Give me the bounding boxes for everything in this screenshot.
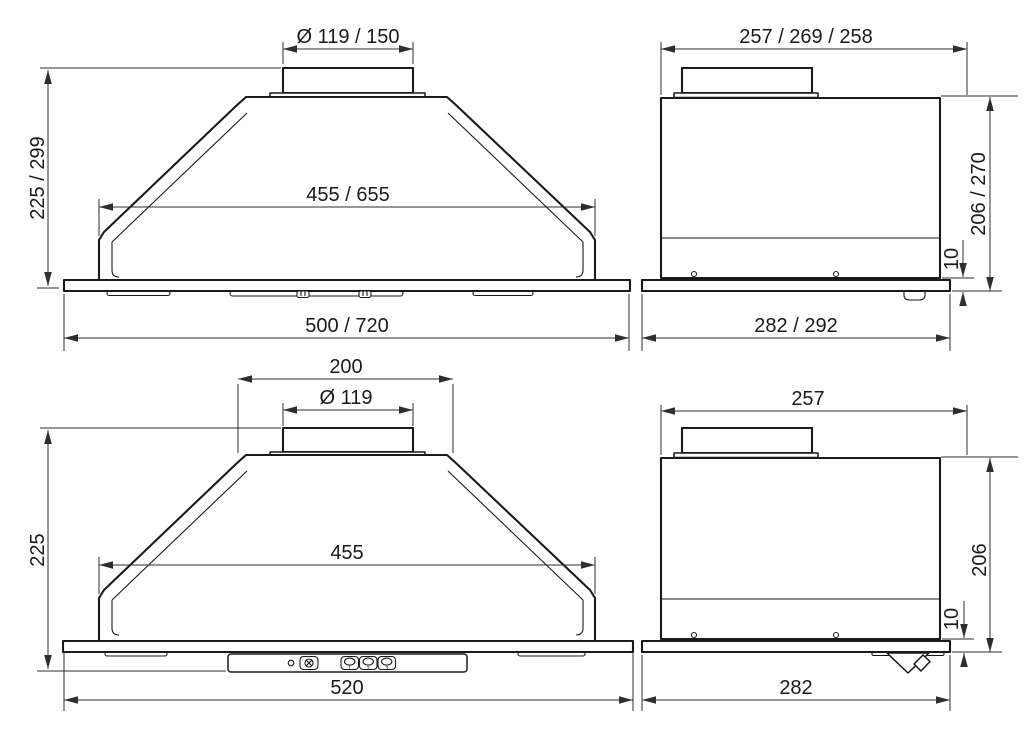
dimension-label-height: 206 / 270 [968, 152, 990, 235]
technical-drawing-canvas: Ø 119 / 150 225 / 299 455 / 655 500 / 72… [0, 0, 1024, 744]
dimension-label-duct-diameter: Ø 119 [320, 387, 373, 409]
dimension-drawing-page: Ø 119 / 150 225 / 299 455 / 655 500 / 72… [0, 0, 1024, 744]
dimension-label-overall-depth: 282 [779, 677, 812, 699]
dimension-label-top-depth: 257 [791, 388, 824, 410]
dimension-label-duct-diameter: Ø 119 / 150 [296, 26, 399, 48]
duct-collar-outline [283, 68, 413, 93]
control-panel: 1 2 3 [228, 654, 467, 672]
bottom-plate-outline [642, 641, 950, 652]
duct-flange-outline [674, 453, 818, 458]
clip-body [297, 291, 309, 298]
dimension-label-overall-width: 500 / 720 [305, 315, 388, 337]
speed-button-label: 2 [367, 666, 370, 672]
bottom-plate-outline [64, 280, 630, 291]
filter-clip-left [297, 291, 309, 298]
bottom-plate-outline [642, 280, 950, 291]
filter-clip-right [359, 291, 371, 298]
hood-body-outline [661, 98, 940, 278]
speed-button-label: 1 [348, 666, 351, 672]
dimension-label-height: 225 [27, 533, 49, 566]
light-button [300, 657, 318, 670]
hood-body-outline [661, 458, 940, 639]
dimension-label-plate-offset: 10 [941, 248, 963, 270]
dimension-label-top-width: 200 [329, 356, 362, 378]
duct-flange-outline [674, 93, 818, 98]
speed-button-label: 3 [385, 666, 388, 672]
clip-body [359, 291, 371, 298]
speed-button-3: 3 [378, 657, 396, 673]
dimension-label-height: 225 / 299 [27, 136, 49, 219]
dimension-label-body-width: 455 / 655 [306, 184, 389, 206]
dimension-label-overall-width: 520 [330, 677, 363, 699]
dimension-label-overall-depth: 282 / 292 [754, 315, 837, 337]
dimension-label-plate-offset: 10 [941, 608, 963, 630]
duct-collar-outline [682, 428, 812, 453]
duct-collar-outline [283, 428, 413, 452]
dimension-label-height: 206 [969, 543, 991, 576]
speed-button-1: 1 [341, 657, 359, 673]
bottom-plate-outline [63, 641, 633, 652]
dimension-label-body-width: 455 [330, 542, 363, 564]
duct-collar-outline [682, 68, 812, 93]
dimension-label-top-depth: 257 / 269 / 258 [739, 26, 872, 48]
speed-button-2: 2 [360, 657, 378, 673]
